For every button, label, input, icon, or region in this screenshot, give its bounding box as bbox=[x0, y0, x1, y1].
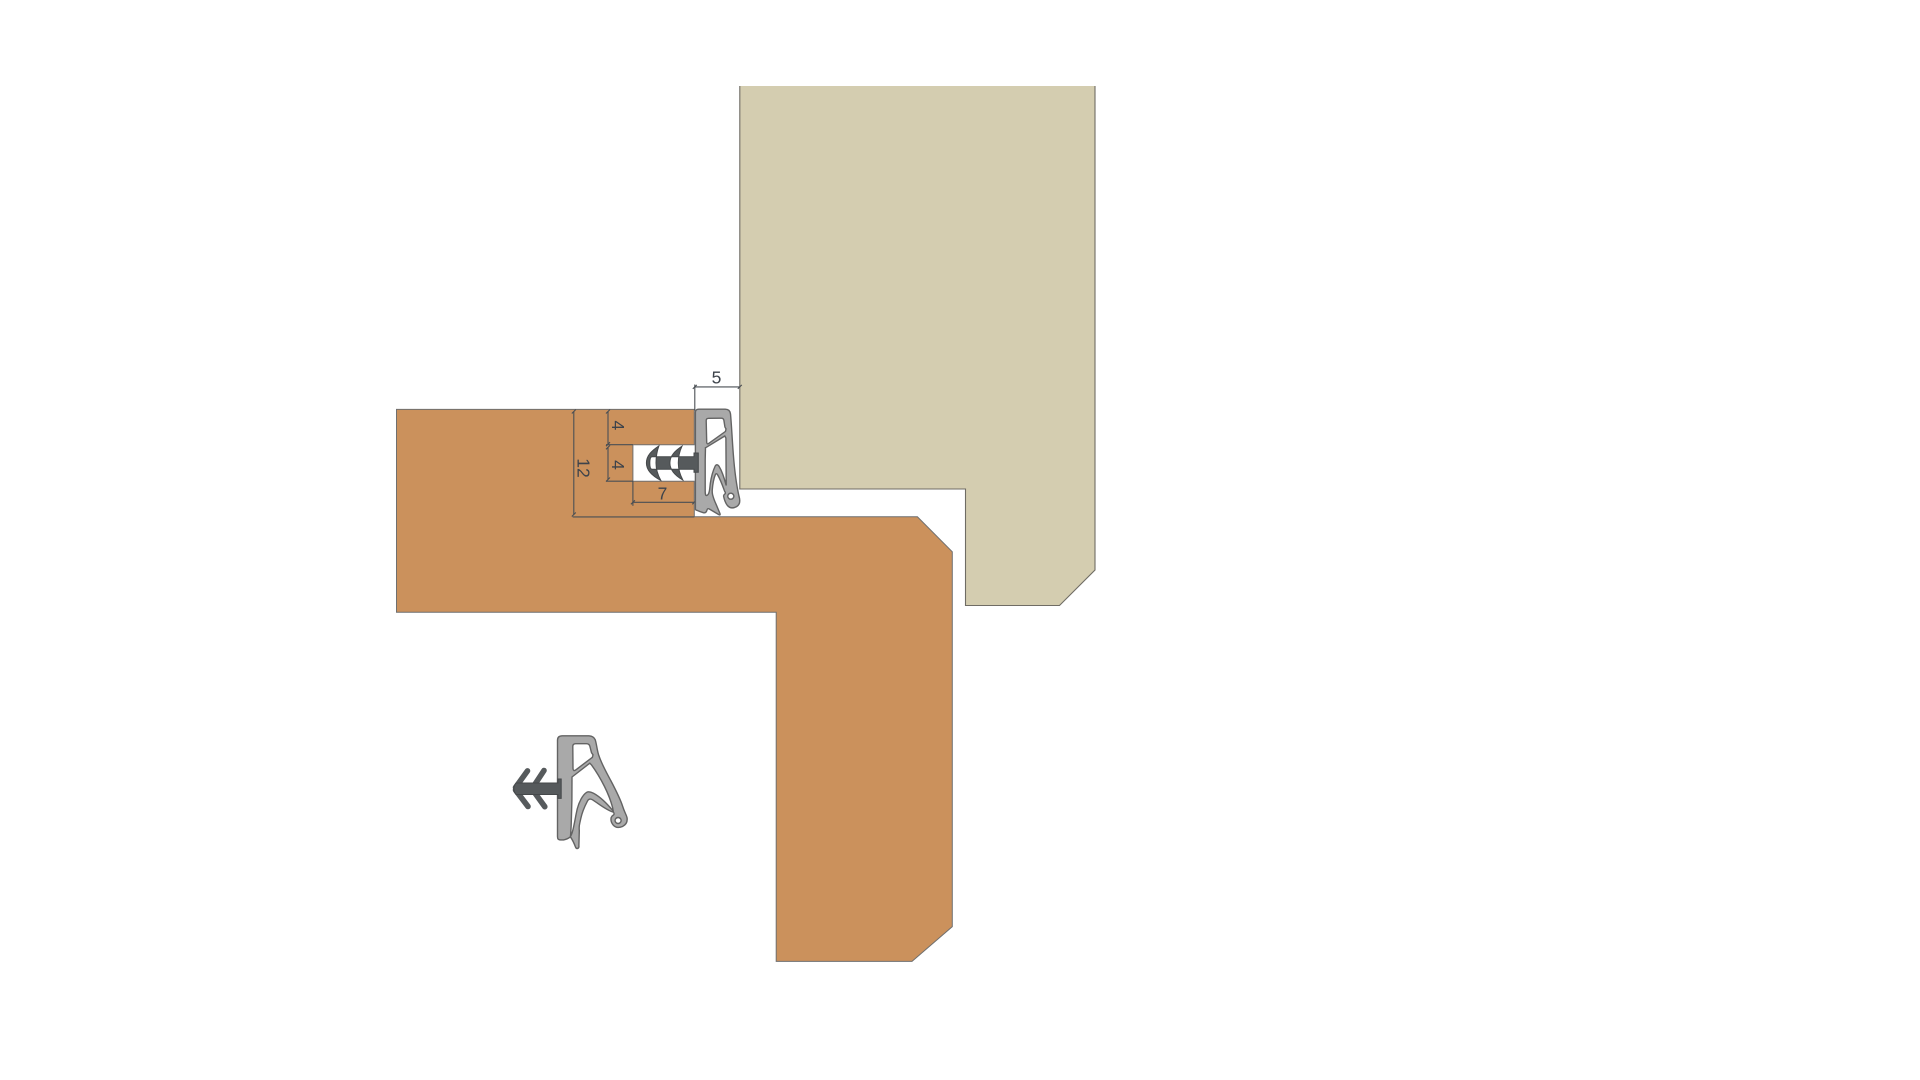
svg-text:12: 12 bbox=[574, 458, 594, 477]
svg-text:7: 7 bbox=[658, 483, 668, 503]
svg-text:5: 5 bbox=[712, 368, 722, 388]
svg-text:4: 4 bbox=[608, 421, 628, 431]
svg-text:4: 4 bbox=[608, 460, 628, 470]
